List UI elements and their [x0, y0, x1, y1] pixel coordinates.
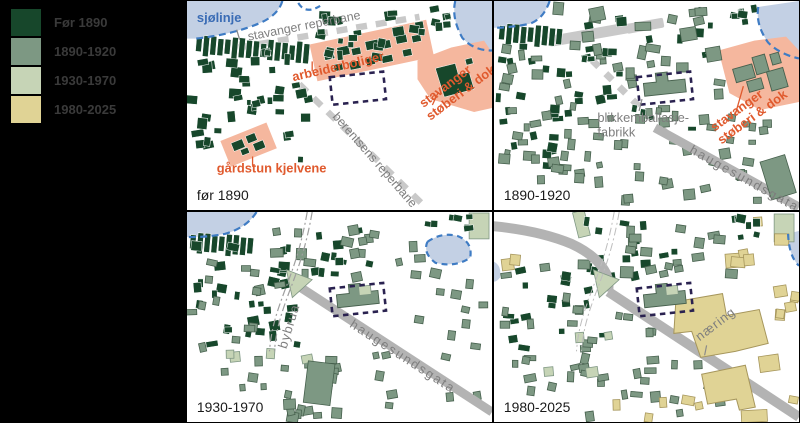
- legend-item: 1930-1970: [11, 67, 186, 94]
- legend: Før 1890 1890-1920 1930-1970 1980-2025: [0, 0, 186, 125]
- legend-item: 1890-1920: [11, 38, 186, 65]
- panel-caption: før 1890: [197, 187, 249, 203]
- urban-development-figure: Før 1890 1890-1920 1930-1970 1980-2025 s…: [0, 0, 800, 423]
- legend-label-before-1890: Før 1890: [54, 15, 107, 30]
- map-panel-1890-1920: blikkemballasje- fabrikk stavanger støbe…: [493, 0, 800, 211]
- legend-swatch-1890-1920: [11, 38, 41, 65]
- factory-label-line1: blikkemballasje-: [597, 110, 689, 125]
- farmstead-label: gårdstun kjelvene: [217, 160, 327, 175]
- legend-swatch-before-1890: [11, 9, 41, 36]
- panel-caption: 1980-2025: [504, 399, 571, 415]
- shoreline-label: sjølinje: [197, 10, 241, 25]
- legend-label-1930-1970: 1930-1970: [54, 73, 116, 88]
- ropewalk-diagonal-label: berentsens reperbane: [330, 110, 420, 210]
- map-panel-before-1890: sjølinje stavanger reperbane berentsens …: [186, 0, 493, 211]
- legend-item: 1980-2025: [11, 96, 186, 123]
- legend-swatch-1980-2025: [11, 96, 41, 123]
- panel-caption: 1890-1920: [504, 187, 571, 203]
- legend-item: Før 1890: [11, 9, 186, 36]
- legend-swatch-1930-1970: [11, 67, 41, 94]
- map-panel-1980-2025: næring 1980-2025: [493, 211, 800, 423]
- map-grid: sjølinje stavanger reperbane berentsens …: [186, 0, 800, 423]
- factory-label-line2: fabrikk: [597, 125, 636, 140]
- panel-caption: 1930-1970: [197, 399, 264, 415]
- map-graphics-layer: [494, 212, 799, 422]
- map-panel-1930-1970: bybrua haugesundsgata 1930-1970: [186, 211, 493, 423]
- legend-label-1890-1920: 1890-1920: [54, 44, 116, 59]
- legend-label-1980-2025: 1980-2025: [54, 102, 116, 117]
